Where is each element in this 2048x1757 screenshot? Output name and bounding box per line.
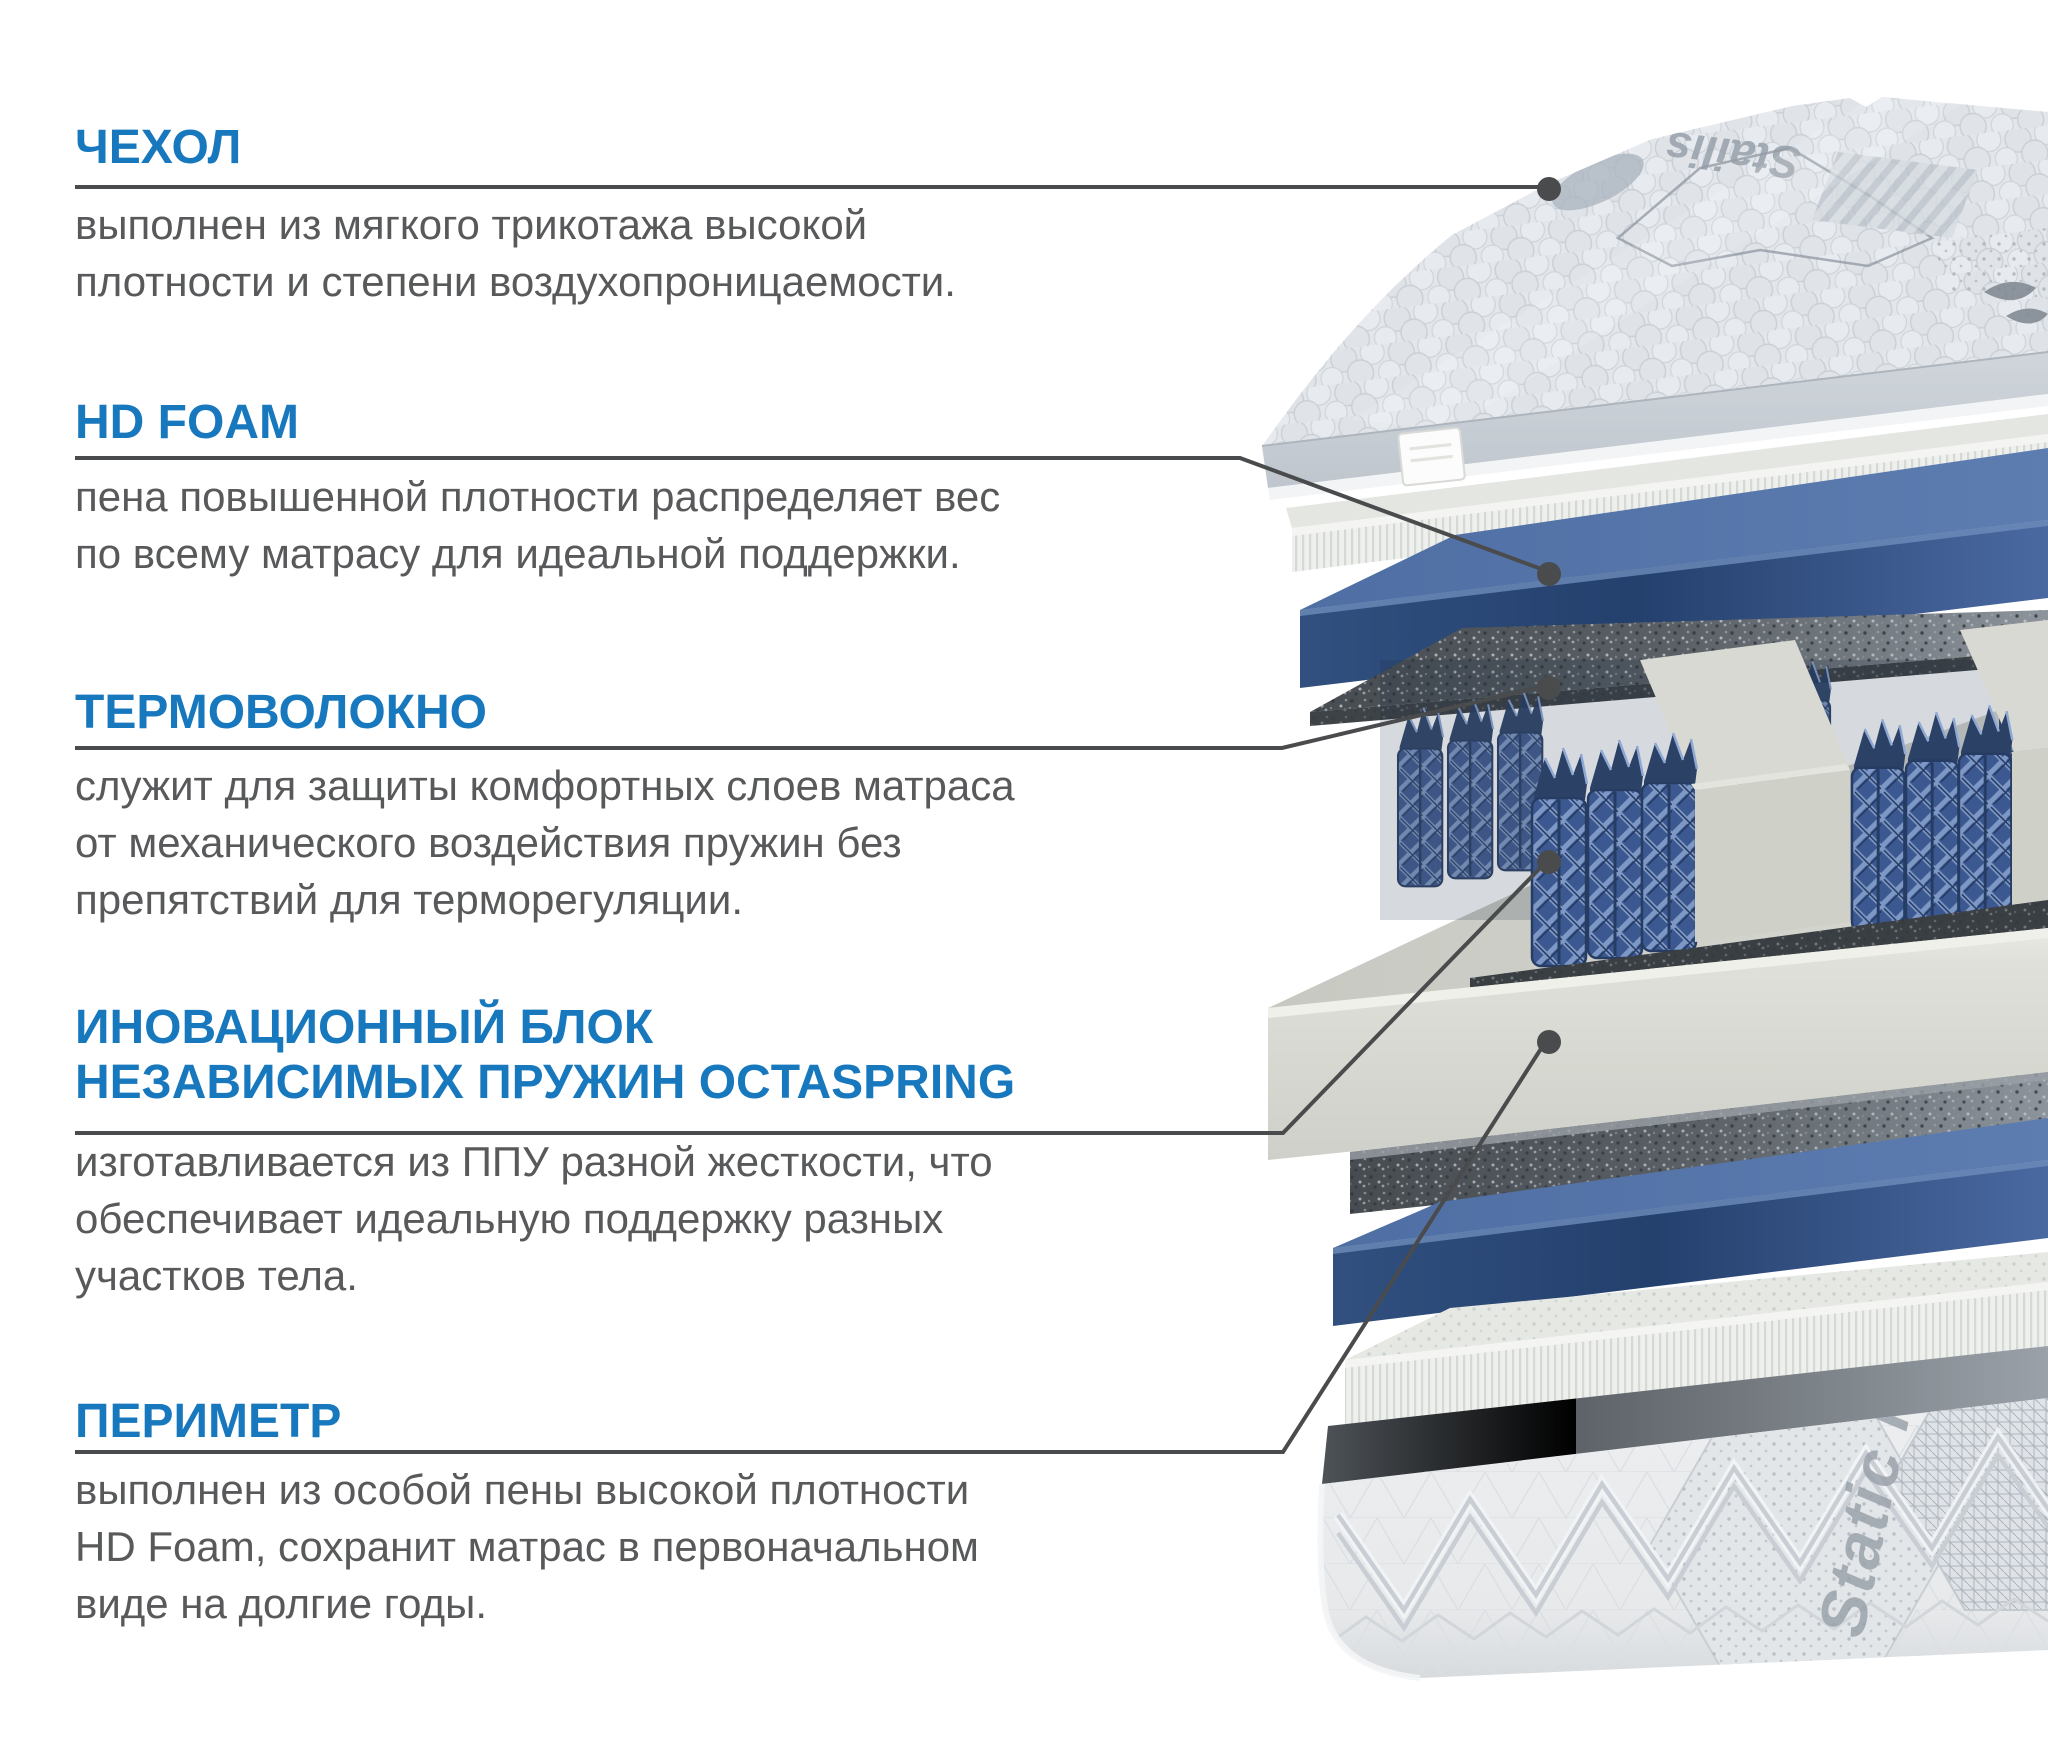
callout-dot-hdfoam [1537,562,1561,586]
callout-dot-cover [1537,177,1561,201]
section-cover-description: выполнен из мягкого трикотажа высокой пл… [75,196,1305,310]
section-thermo-fiber: ТЕРМОВОЛОКНО служит для защиты комфортны… [75,685,1305,928]
section-octaspring-block: ИНОВАЦИОННЫЙ БЛОК НЕЗАВИСИМЫХ ПРУЖИН OCT… [75,1000,1305,1304]
section-hd-foam: HD FOAM пена повышенной плотности распре… [75,395,1305,582]
infographic-canvas: Static Free Stailis [0,0,2048,1757]
section-octaspring-block-title: ИНОВАЦИОННЫЙ БЛОК НЕЗАВИСИМЫХ ПРУЖИН OCT… [75,1000,1305,1110]
octaspring-layer [1268,620,2048,1160]
fabric-tag [1398,428,1465,486]
section-cover-title: ЧЕХОЛ [75,120,1305,175]
section-cover: ЧЕХОЛ выполнен из мягкого трикотажа высо… [75,120,1305,310]
section-perimeter: ПЕРИМЕТР выполнен из особой пены высокой… [75,1394,1305,1632]
section-perimeter-description: выполнен из особой пены высокой плотност… [75,1461,1305,1632]
section-octaspring-block-description: изготавливается из ППУ разной жесткости,… [75,1133,1305,1304]
section-thermo-fiber-description: служит для защиты комфортных слоев матра… [75,757,1305,928]
section-hd-foam-title: HD FOAM [75,395,1305,450]
callout-dot-perimeter [1537,1030,1561,1054]
section-thermo-fiber-title: ТЕРМОВОЛОКНО [75,685,1305,740]
callout-dot-springs [1537,850,1561,874]
section-hd-foam-description: пена повышенной плотности распределяет в… [75,468,1305,582]
callout-dot-thermo [1537,676,1561,700]
section-perimeter-title: ПЕРИМЕТР [75,1394,1305,1449]
